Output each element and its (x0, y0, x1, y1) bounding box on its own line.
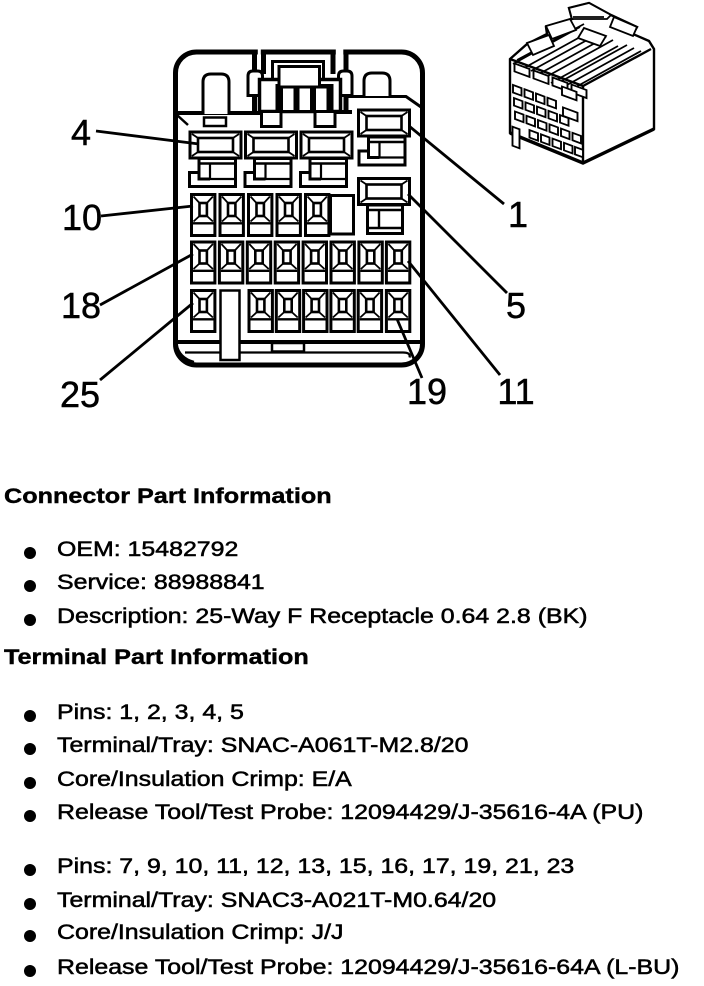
svg-text:5: 5 (506, 285, 526, 326)
svg-text:19: 19 (407, 371, 447, 412)
svg-text:18: 18 (61, 285, 101, 326)
svg-text:4: 4 (71, 112, 91, 153)
svg-text:11: 11 (497, 371, 534, 412)
svg-text:10: 10 (62, 197, 102, 238)
svg-text:1: 1 (508, 194, 528, 235)
svg-text:25: 25 (60, 374, 100, 415)
